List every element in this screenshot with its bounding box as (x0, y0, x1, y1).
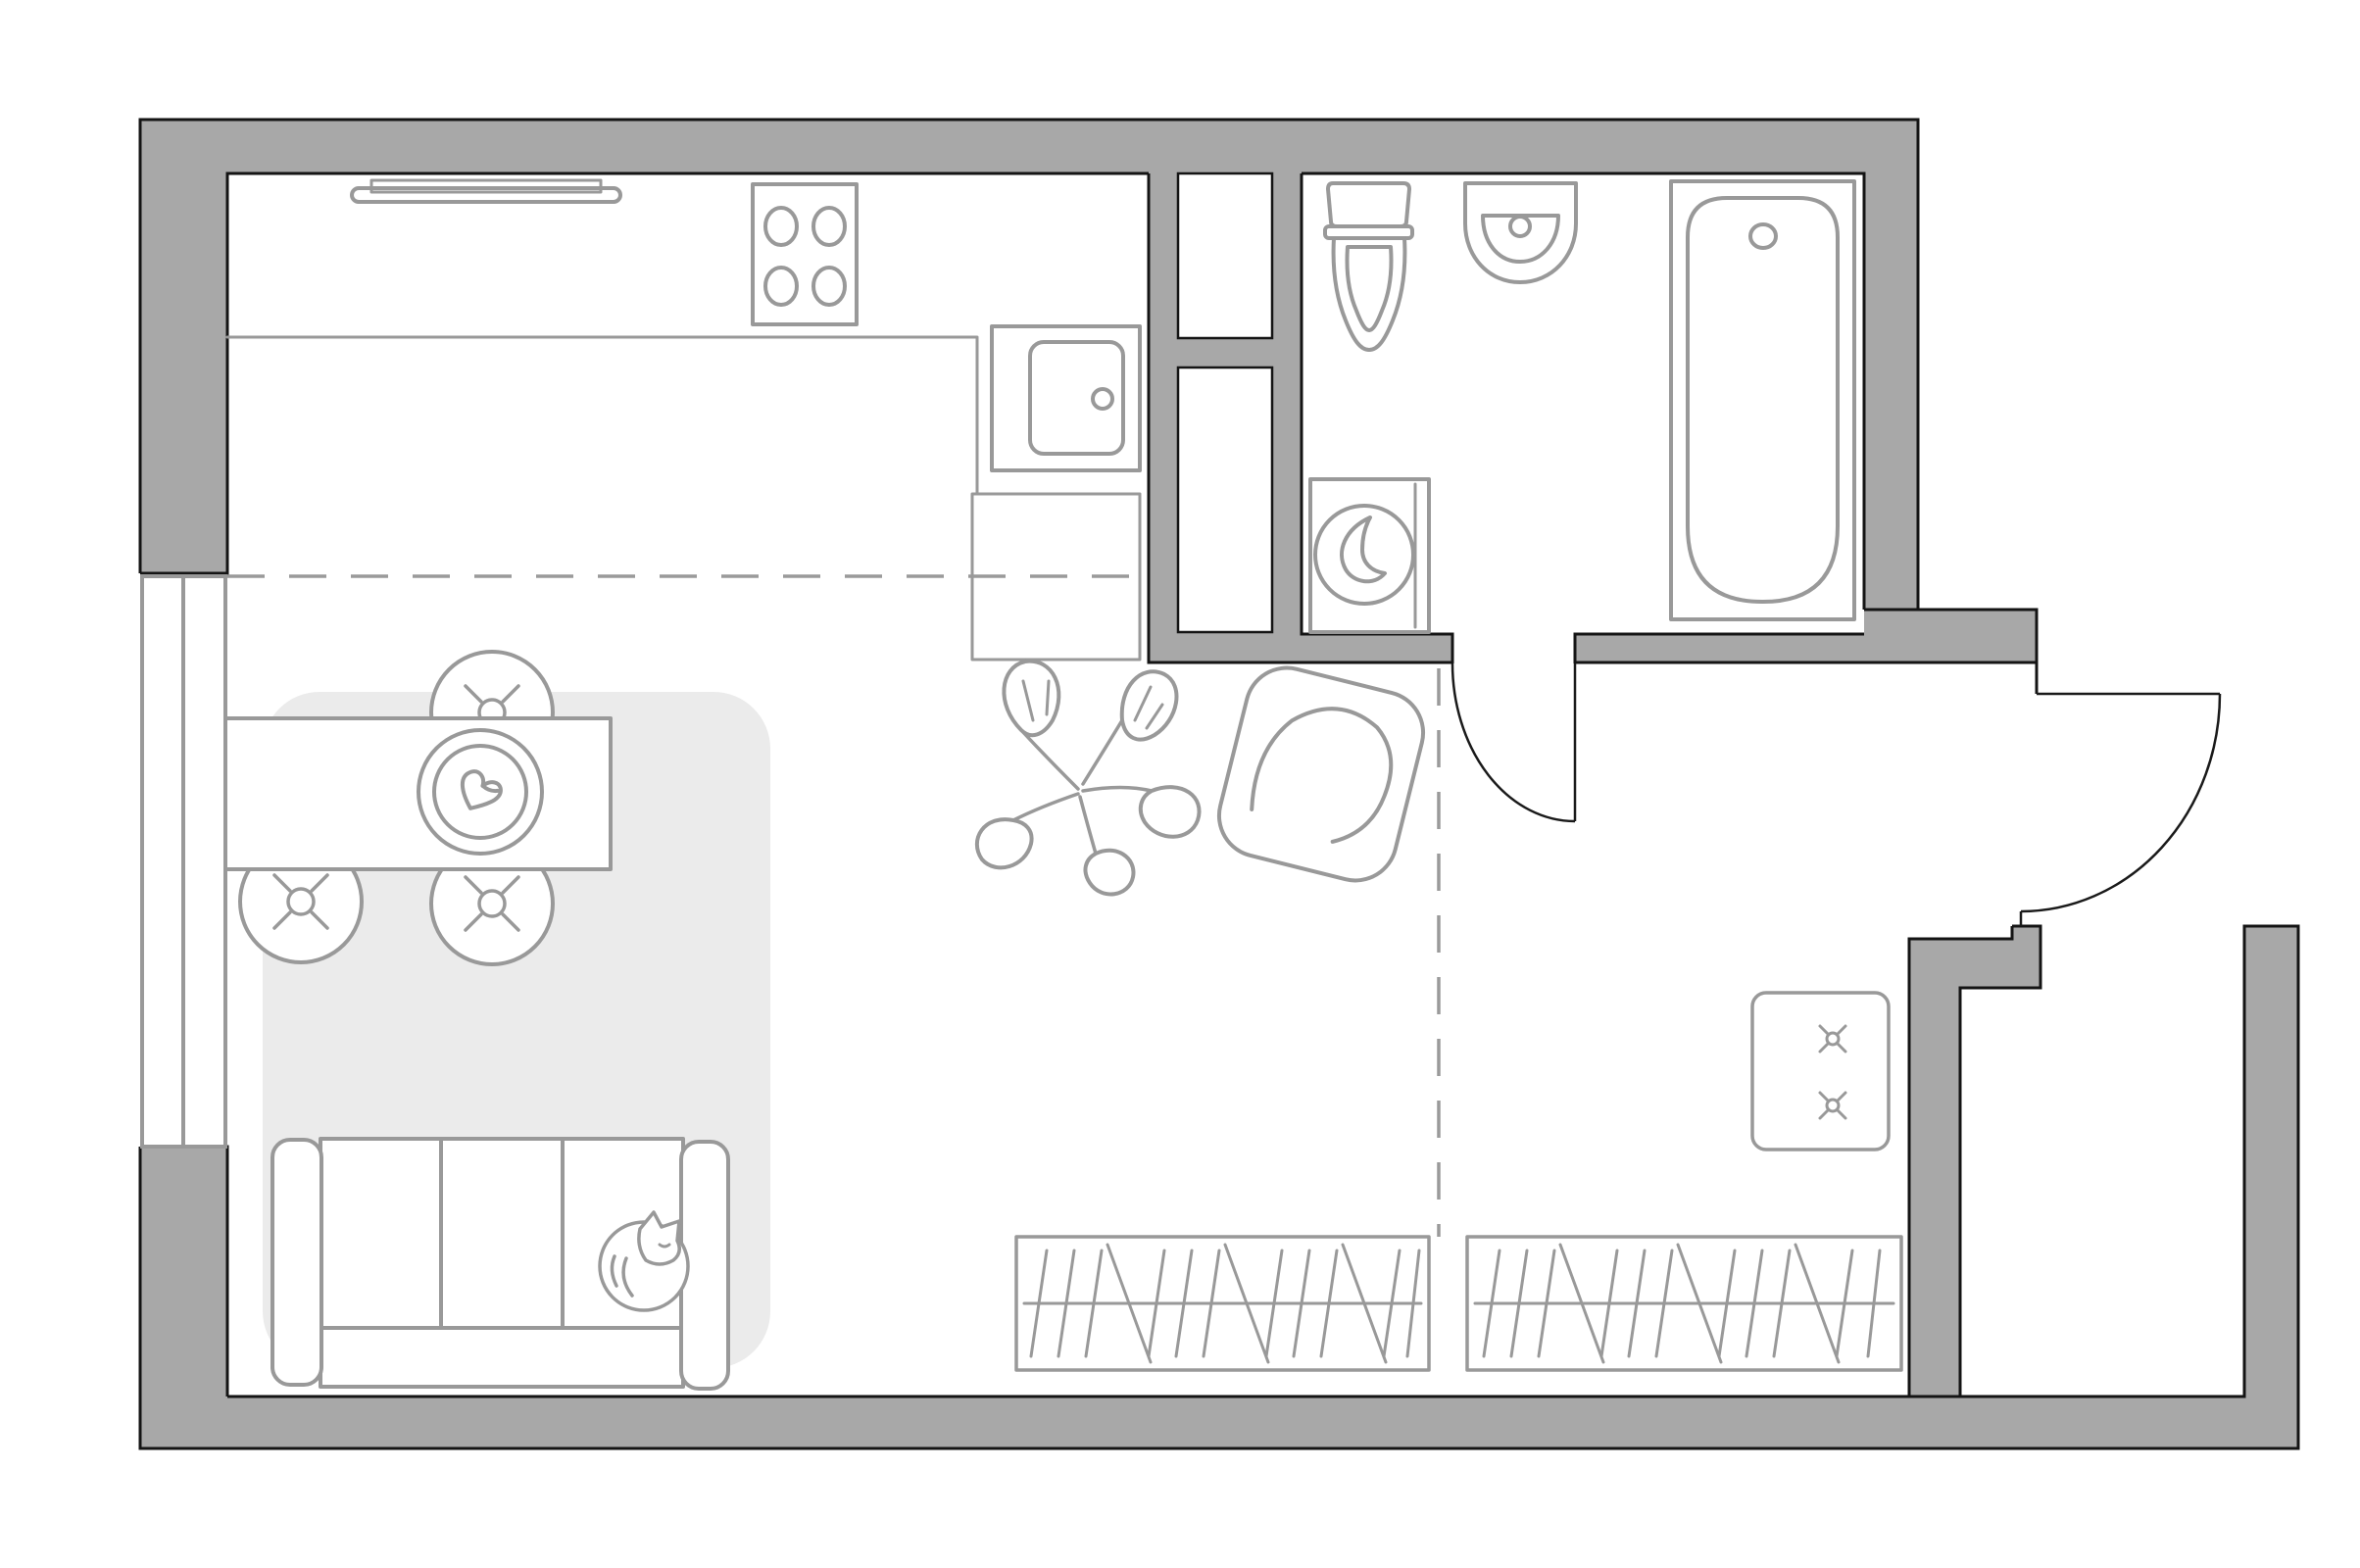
toilet-tank (1328, 183, 1409, 226)
shoe-cabinet-body (1752, 993, 1889, 1150)
plant-leaf (1085, 851, 1133, 895)
armchair (1210, 660, 1432, 890)
wash-basin (1465, 183, 1576, 282)
entrance-stub-bar (1909, 939, 2040, 988)
cabinet-knob-cross (1820, 1026, 1845, 1052)
plant-leaf (977, 819, 1032, 867)
wardrobe-right (1467, 1237, 1901, 1370)
bathtub (1671, 181, 1854, 619)
hall-divider-wall (1909, 988, 1960, 1396)
left-wall-upper (140, 120, 227, 573)
basin-outer (1465, 183, 1576, 282)
radiator-shelf-front (352, 188, 620, 202)
entrance-door-swing-arc (2021, 694, 2220, 911)
entrance-stub-neck (2012, 926, 2040, 939)
stove-body (753, 184, 857, 324)
radiator-shelf (352, 180, 620, 202)
duct-shaft-upper (1178, 173, 1272, 338)
toilet-bowl-outer (1334, 238, 1405, 350)
wardrobe-left (1016, 1237, 1429, 1370)
plant-leaf (1004, 661, 1058, 736)
plant-stems (1013, 720, 1152, 854)
shoe-cabinet (1752, 993, 1889, 1150)
kitchen-zone (227, 180, 1140, 660)
right-wall-lower (2244, 926, 2298, 1448)
toilet (1325, 183, 1412, 350)
right-wall-upper (1864, 120, 1918, 610)
bathroom-south-wall-right (1575, 634, 1864, 663)
window-left (142, 576, 225, 1147)
armchair-outer (1210, 660, 1432, 890)
bathroom-door-swing-arc (1452, 663, 1575, 821)
sofa-three-seat (272, 1139, 728, 1389)
plant-leaf (1141, 787, 1200, 837)
washer-body (1310, 479, 1429, 632)
bathroom-south-wall-left (1302, 634, 1452, 663)
counter-edge (227, 337, 977, 494)
floor-plan-canvas (0, 0, 2360, 1568)
plant-leaf (1122, 671, 1177, 739)
bathroom-zone (1310, 181, 1854, 632)
top-wall (140, 120, 1918, 173)
floor-plan-page (0, 0, 2360, 1568)
hallway-zone (1016, 993, 1901, 1370)
cabinet-knob-cross (1820, 1093, 1845, 1118)
duct-shaft-lower (1178, 367, 1272, 632)
bottom-wall (140, 1396, 2298, 1448)
doors (1452, 663, 2220, 926)
stove-four-burners (753, 184, 857, 324)
sofa-armrest-left (272, 1140, 321, 1385)
kitchen-sink (992, 326, 1140, 470)
southeast-corner-block (1864, 610, 2037, 662)
monstera-plant (977, 661, 1200, 895)
washing-machine (1310, 479, 1429, 632)
left-wall-lower (140, 1147, 227, 1396)
dining-table (225, 718, 611, 869)
